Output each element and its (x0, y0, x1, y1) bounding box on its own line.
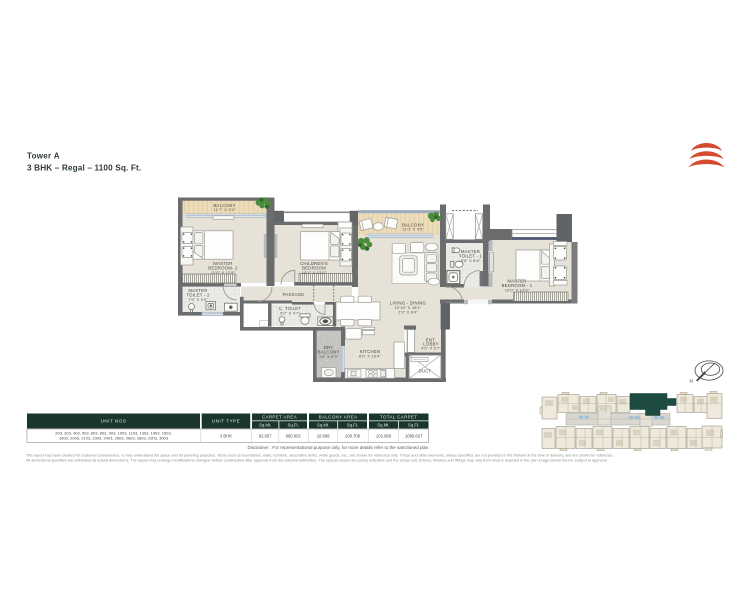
svg-text:Tower A: Tower A (27, 152, 60, 161)
svg-text:4'0" X 5'7": 4'0" X 5'7" (421, 346, 441, 351)
svg-text:5'0" X 4'7": 5'0" X 4'7" (280, 310, 300, 315)
svg-text:2'9" X 8'4": 2'9" X 8'4" (398, 310, 418, 315)
svg-text:CARPET AREA: CARPET AREA (262, 415, 297, 420)
svg-text:1603, 2003, 2103, 2303, 2403,: 1603, 2003, 2103, 2303, 2403, 2503, 2603… (59, 436, 169, 441)
svg-text:102.956: 102.956 (376, 434, 392, 439)
svg-text:All dimensions specified are u: All dimensions specified are unfinished … (26, 459, 608, 463)
svg-text:UNIT NOS: UNIT NOS (101, 419, 127, 424)
svg-text:Sq.Ft.: Sq.Ft. (287, 422, 298, 427)
svg-text:3 BHK – Regal – 1100 Sq. Ft.: 3 BHK – Regal – 1100 Sq. Ft. (27, 164, 141, 173)
svg-text:10.899: 10.899 (317, 434, 330, 439)
svg-text:N: N (690, 379, 693, 384)
svg-text:DUCT: DUCT (419, 369, 432, 374)
svg-text:Sq.Mt.: Sq.Mt. (259, 422, 271, 427)
svg-text:Sq.Ft.: Sq.Ft. (408, 422, 419, 427)
svg-text:1099.607: 1099.607 (405, 434, 423, 439)
svg-text:Disclaimer : For representatio: Disclaimer : For representational purpos… (247, 445, 429, 450)
svg-text:11'0" X 4'5": 11'0" X 4'5" (402, 227, 424, 232)
svg-text:Sq.Ft.: Sq.Ft. (347, 422, 358, 427)
svg-text:990.902: 990.902 (286, 434, 302, 439)
svg-text:BALCONY AREA: BALCONY AREA (319, 415, 358, 420)
svg-text:This layout has been created f: This layout has been created for custome… (26, 454, 614, 458)
svg-text:8'0" X 10'4": 8'0" X 10'4" (359, 354, 382, 359)
svg-text:11'0" X 12'9": 11'0" X 12'9" (211, 270, 236, 275)
svg-text:UNIT TYPE: UNIT TYPE (212, 419, 240, 424)
svg-text:10'4" X 12'0": 10'4" X 12'0" (302, 270, 327, 275)
svg-text:7'9" X 4'0": 7'9" X 4'0" (188, 297, 208, 302)
svg-text:5'0" X 8'6": 5'0" X 8'6" (461, 258, 481, 263)
svg-text:Sq.Mt.: Sq.Mt. (377, 422, 389, 427)
svg-text:3 BHK: 3 BHK (220, 434, 232, 439)
svg-text:108.706: 108.706 (345, 434, 361, 439)
svg-text:11'7" X 2'9": 11'7" X 2'9" (214, 207, 236, 212)
svg-text:Sq.Mt.: Sq.Mt. (317, 422, 329, 427)
svg-text:10'0" X 12'0": 10'0" X 12'0" (505, 287, 530, 292)
svg-text:TOTAL CARPET: TOTAL CARPET (380, 415, 417, 420)
svg-text:PASSAGE: PASSAGE (283, 292, 305, 297)
svg-text:3'0" X 8'9": 3'0" X 8'9" (319, 354, 339, 359)
svg-text:92.057: 92.057 (259, 434, 272, 439)
